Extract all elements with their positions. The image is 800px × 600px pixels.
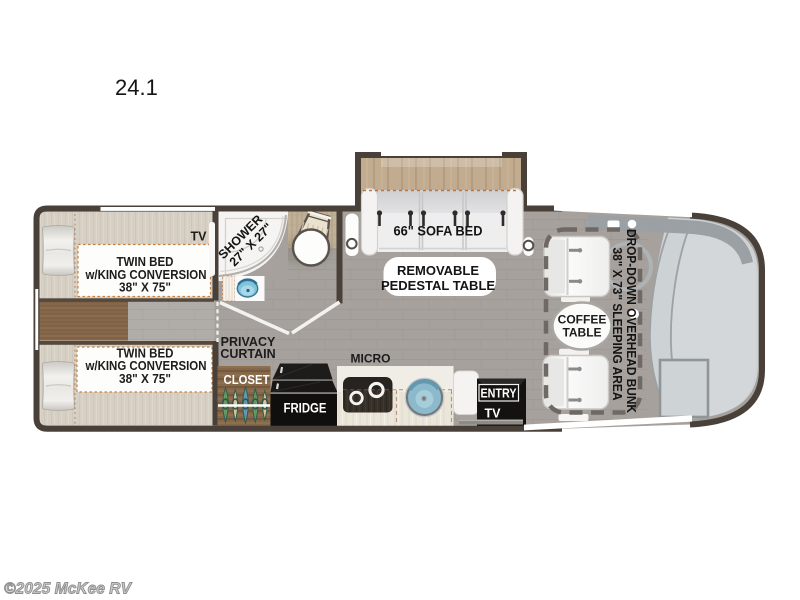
svg-text:MICRO: MICRO: [351, 352, 391, 366]
svg-text:38" X 75": 38" X 75": [119, 280, 171, 295]
svg-text:DROP-DOWN OVERHEAD BUNK: DROP-DOWN OVERHEAD BUNK: [624, 229, 639, 414]
svg-text:CLOSET: CLOSET: [224, 372, 270, 387]
svg-text:FRIDGE: FRIDGE: [284, 401, 327, 416]
svg-text:©2025 McKee RV: ©2025 McKee RV: [4, 581, 132, 598]
svg-text:38" X 75": 38" X 75": [119, 371, 171, 386]
svg-text:24.1: 24.1: [115, 75, 158, 100]
svg-text:ENTRY: ENTRY: [481, 386, 517, 401]
svg-text:PEDESTAL TABLE: PEDESTAL TABLE: [381, 278, 495, 293]
svg-text:REMOVABLE: REMOVABLE: [397, 263, 479, 278]
svg-text:COFFEE: COFFEE: [558, 313, 607, 327]
svg-text:38" X 73" SLEEPING AREA: 38" X 73" SLEEPING AREA: [610, 248, 625, 402]
svg-text:66" SOFA BED: 66" SOFA BED: [394, 224, 483, 239]
svg-text:TV: TV: [191, 230, 208, 244]
svg-text:CURTAIN: CURTAIN: [220, 347, 275, 361]
svg-text:TABLE: TABLE: [562, 326, 601, 340]
svg-text:TV: TV: [485, 407, 502, 421]
